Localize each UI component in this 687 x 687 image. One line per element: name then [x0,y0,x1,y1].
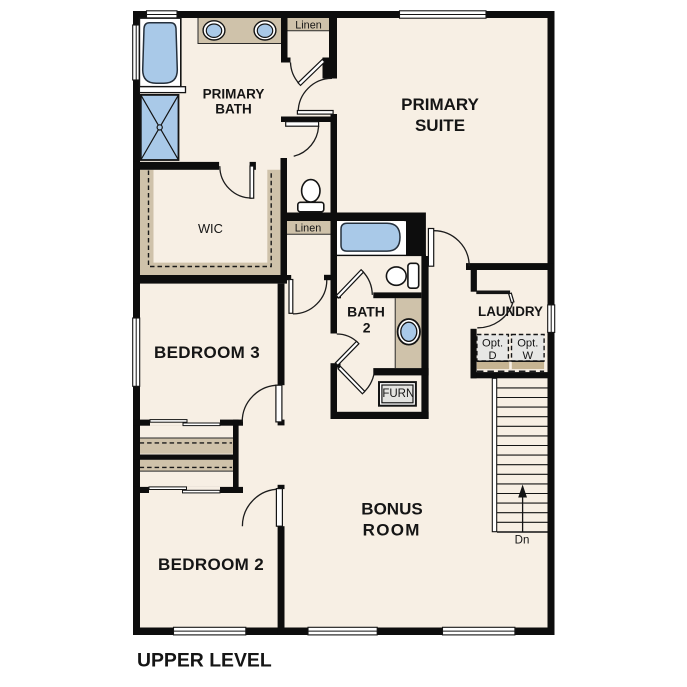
svg-text:D: D [489,350,497,362]
svg-text:BONUS: BONUS [361,500,422,519]
svg-text:UPPER LEVEL: UPPER LEVEL [137,649,272,671]
svg-text:BATH: BATH [215,102,252,117]
svg-text:Opt.: Opt. [482,338,503,350]
svg-text:FURN: FURN [382,388,414,400]
svg-text:SUITE: SUITE [415,116,465,135]
svg-text:BATH: BATH [347,304,385,320]
svg-text:W: W [523,350,534,362]
svg-text:ROOM: ROOM [363,521,421,540]
svg-text:Opt.: Opt. [517,338,538,350]
svg-text:PRIMARY: PRIMARY [401,95,479,114]
svg-text:Linen: Linen [295,222,321,234]
svg-text:Dn: Dn [515,535,530,547]
svg-text:Linen: Linen [295,20,321,32]
svg-text:2: 2 [363,320,371,336]
svg-text:PRIMARY: PRIMARY [203,86,265,101]
svg-text:BEDROOM 3: BEDROOM 3 [154,343,260,362]
svg-text:LAUNDRY: LAUNDRY [478,304,543,319]
svg-text:BEDROOM 2: BEDROOM 2 [158,555,264,574]
svg-text:WIC: WIC [198,221,223,236]
